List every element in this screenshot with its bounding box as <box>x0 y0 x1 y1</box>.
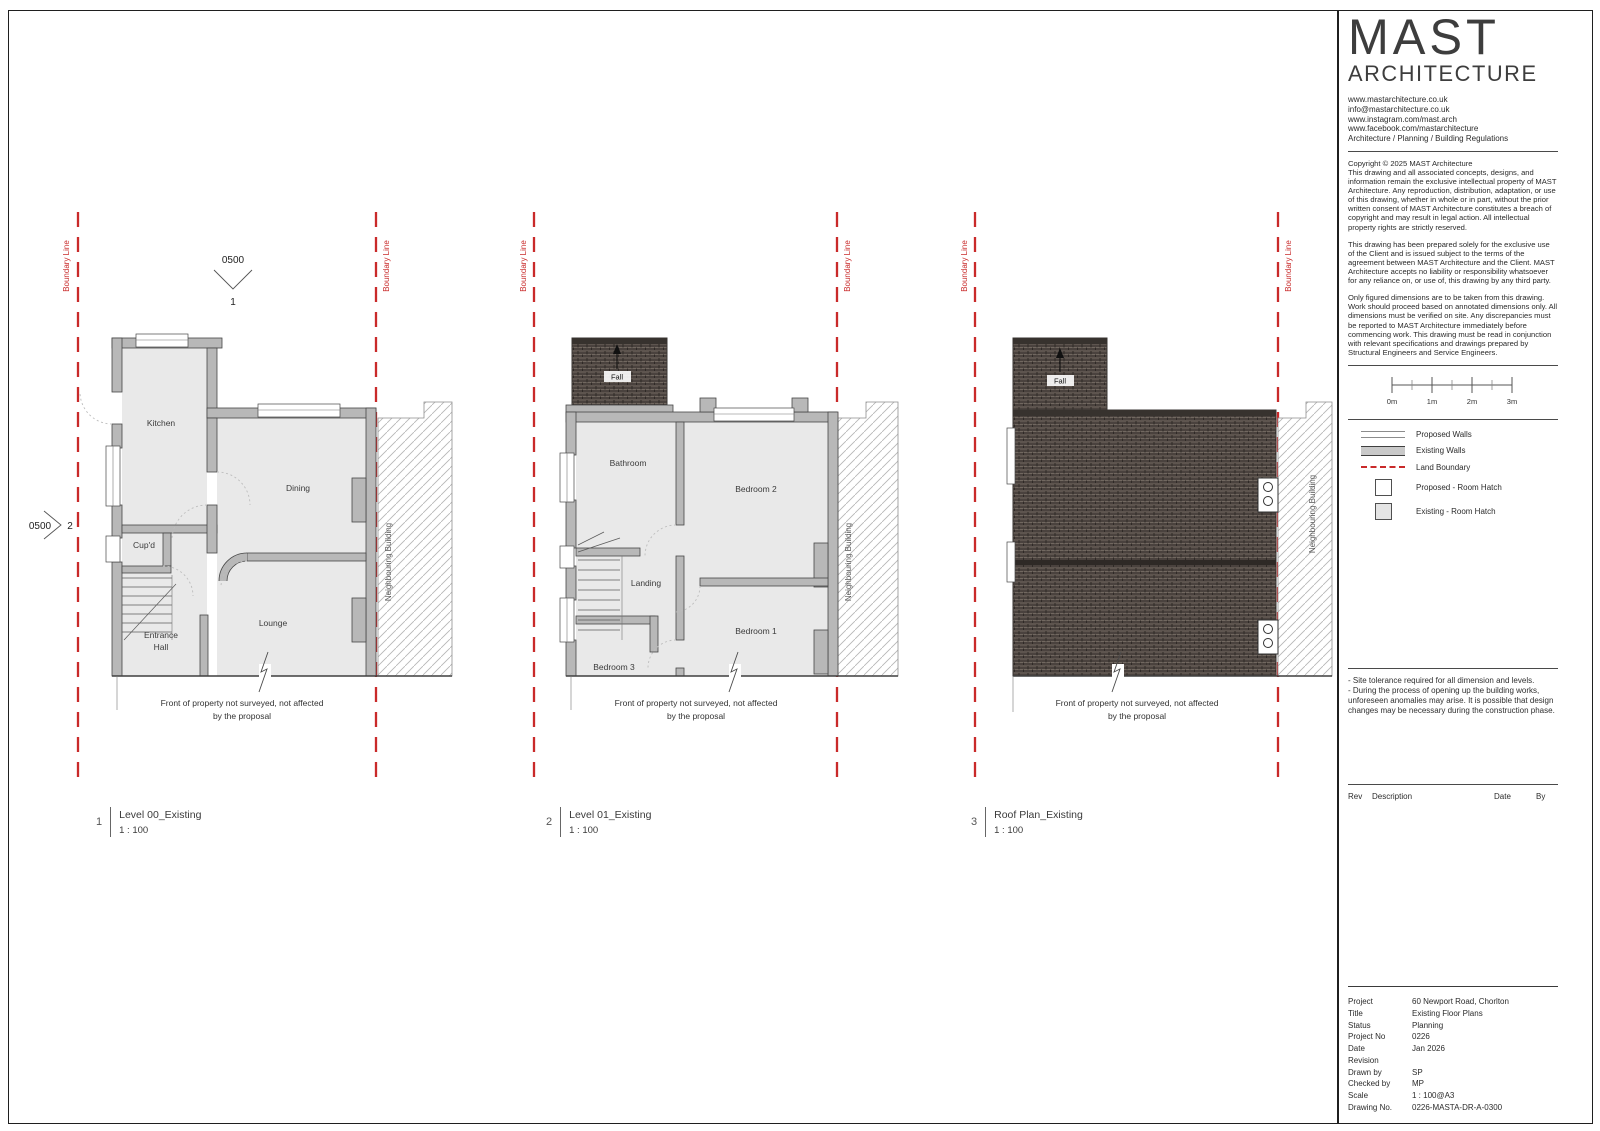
plan-level00: Boundary Line Boundary Line 0500 1 0500 … <box>29 212 452 778</box>
front-note-line2: by the proposal <box>667 711 725 721</box>
front-note-line1: Front of property not surveyed, not affe… <box>615 698 778 708</box>
row-value: Jan 2026 <box>1412 1043 1558 1055</box>
boundary-line-label: Boundary Line <box>519 240 528 292</box>
plan-title-level01: 2 Level 01_Existing 1 : 100 <box>546 807 651 837</box>
row-label: Drawn by <box>1348 1067 1412 1079</box>
boundary-line-label: Boundary Line <box>382 240 391 292</box>
plan-title-text: Level 01_Existing <box>569 809 651 821</box>
section-marker-1-icon: 0500 1 <box>214 255 252 308</box>
legend-row: Land Boundary <box>1360 463 1558 472</box>
section-number: 2 <box>67 521 73 532</box>
front-note-line2: by the proposal <box>1108 711 1166 721</box>
row-label: Revision <box>1348 1055 1412 1067</box>
main-roof-hatch <box>1013 410 1276 676</box>
window <box>1007 428 1015 484</box>
room-label-kitchen: Kitchen <box>147 418 176 428</box>
legend: Proposed Walls Existing Walls Land Bound… <box>1348 430 1558 520</box>
scale-tick-label: 3m <box>1507 397 1517 406</box>
legend-row: Existing Walls <box>1360 446 1558 456</box>
legend-label: Proposed Walls <box>1416 430 1472 439</box>
row-value: Existing Floor Plans <box>1412 1008 1558 1020</box>
revision-table-header: Rev Description Date By <box>1348 784 1558 801</box>
legend-label: Existing Walls <box>1416 446 1466 455</box>
row-label: Title <box>1348 1008 1412 1020</box>
title-divider <box>110 807 111 837</box>
link-facebook: www.facebook.com/mastarchitecture <box>1348 124 1558 134</box>
row-value: Planning <box>1412 1020 1558 1032</box>
logo-text-mast: MAST <box>1348 14 1554 60</box>
scale-bar-graphic: 0m 1m 2m 3m <box>1386 375 1536 407</box>
room-area <box>122 348 207 676</box>
copyright-paragraph-3: Only figured dimensions are to be taken … <box>1348 293 1558 357</box>
row-label: Status <box>1348 1020 1412 1032</box>
link-website: www.mastarchitecture.co.uk <box>1348 95 1558 105</box>
table-row: Status Planning <box>1348 1020 1558 1032</box>
company-links: www.mastarchitecture.co.uk info@mastarch… <box>1348 95 1558 144</box>
title-divider <box>560 807 561 837</box>
roof-edge <box>572 338 667 344</box>
plan-scale-text: 1 : 100 <box>569 825 651 836</box>
table-row: Scale 1 : 100@A3 <box>1348 1090 1558 1102</box>
project-info-table: Project 60 Newport Road, Chorlton Title … <box>1348 986 1558 1114</box>
section-arrow-down-icon <box>214 270 252 289</box>
site-notes: - Site tolerance required for all dimens… <box>1348 668 1558 716</box>
row-label: Project No <box>1348 1031 1412 1043</box>
roof-vent-box <box>1258 478 1278 512</box>
roof-ridge <box>1013 560 1276 565</box>
front-note-line1: Front of property not surveyed, not affe… <box>1056 698 1219 708</box>
row-value: 0226 <box>1412 1031 1558 1043</box>
row-value: 60 Newport Road, Chorlton <box>1412 996 1558 1008</box>
plan-level01: Boundary Line Boundary Line Neighbouring… <box>519 212 898 778</box>
room-label-landing: Landing <box>631 578 662 588</box>
room-label-bedroom1: Bedroom 1 <box>735 626 777 636</box>
plan-title-text: Level 00_Existing <box>119 809 201 821</box>
row-value: 0226-MASTA-DR-A-0300 <box>1412 1102 1558 1114</box>
legend-label: Proposed - Room Hatch <box>1416 483 1502 492</box>
neighbouring-building-label: Neighbouring Building <box>1308 475 1317 553</box>
section-ref: 0500 <box>222 255 245 266</box>
row-label: Scale <box>1348 1090 1412 1102</box>
legend-label: Land Boundary <box>1416 463 1470 472</box>
table-row: Date Jan 2026 <box>1348 1043 1558 1055</box>
link-email: info@mastarchitecture.co.uk <box>1348 105 1558 115</box>
plan-roof: Boundary Line Boundary Line Neighbouring… <box>960 212 1332 778</box>
front-note-line2: by the proposal <box>213 711 271 721</box>
plans-canvas: Boundary Line Boundary Line 0500 1 0500 … <box>0 0 1337 1131</box>
description-col-header: Description <box>1372 792 1494 801</box>
table-row: Project 60 Newport Road, Chorlton <box>1348 996 1558 1008</box>
existing-room-hatch-symbol <box>1375 503 1392 520</box>
title-divider <box>985 807 986 837</box>
plan-title-text: Roof Plan_Existing <box>994 809 1083 821</box>
boundary-line-label: Boundary Line <box>843 240 852 292</box>
section-marker-2-icon: 0500 2 <box>29 511 73 539</box>
copyright-notes: Copyright © 2025 MAST Architecture This … <box>1348 159 1558 357</box>
copyright-paragraph-2: This drawing has been prepared solely fo… <box>1348 240 1558 286</box>
front-note-line1: Front of property not surveyed, not affe… <box>161 698 324 708</box>
row-value: MP <box>1412 1078 1558 1090</box>
row-value <box>1412 1055 1558 1067</box>
roof-eaves <box>1013 410 1276 416</box>
company-logo: MAST ARCHITECTURE <box>1348 14 1558 87</box>
fall-label: Fall <box>1054 377 1066 386</box>
divider-rule <box>1348 419 1558 420</box>
table-row: Title Existing Floor Plans <box>1348 1008 1558 1020</box>
room-label-cupd: Cup'd <box>133 540 155 550</box>
plan-number: 1 <box>96 816 102 828</box>
table-row: Drawn by SP <box>1348 1067 1558 1079</box>
legend-label: Existing - Room Hatch <box>1416 507 1496 516</box>
plan-scale-text: 1 : 100 <box>119 825 201 836</box>
table-row: Checked by MP <box>1348 1078 1558 1090</box>
scale-bar: 0m 1m 2m 3m <box>1348 373 1558 412</box>
site-note-line1: - Site tolerance required for all dimens… <box>1348 676 1558 686</box>
date-col-header: Date <box>1494 792 1536 801</box>
boundary-line-label: Boundary Line <box>62 240 71 292</box>
row-label: Date <box>1348 1043 1412 1055</box>
link-instagram: www.instagram.com/mast.arch <box>1348 115 1558 125</box>
services-line: Architecture / Planning / Building Regul… <box>1348 134 1558 144</box>
room-label-lounge: Lounge <box>259 618 288 628</box>
logo-text-architecture: ARCHITECTURE <box>1348 61 1552 87</box>
scale-tick-label: 1m <box>1427 397 1437 406</box>
row-label: Checked by <box>1348 1078 1412 1090</box>
existing-walls-symbol <box>1361 446 1405 456</box>
divider-rule <box>1348 151 1558 152</box>
row-value: SP <box>1412 1067 1558 1079</box>
table-row: Revision <box>1348 1055 1558 1067</box>
room-label-dining: Dining <box>286 483 310 493</box>
titleblock-divider <box>1337 10 1339 1124</box>
table-row: Project No 0226 <box>1348 1031 1558 1043</box>
divider-rule <box>1348 365 1558 366</box>
rev-col-header: Rev <box>1348 792 1372 801</box>
section-ref: 0500 <box>29 521 52 532</box>
legend-row: Proposed Walls <box>1360 430 1558 439</box>
neighbouring-building-label: Neighbouring Building <box>844 523 853 601</box>
room-label-bedroom3: Bedroom 3 <box>593 662 635 672</box>
site-note-line2: - During the process of opening up the b… <box>1348 686 1558 716</box>
row-label: Project <box>1348 996 1412 1008</box>
room-label-entrance: Entrance <box>144 630 178 640</box>
plan-number: 3 <box>971 816 977 828</box>
neighbouring-building-hatch <box>1278 402 1332 676</box>
table-row: Drawing No. 0226-MASTA-DR-A-0300 <box>1348 1102 1558 1114</box>
roof-vent-box <box>1258 620 1278 654</box>
land-boundary-symbol <box>1361 466 1405 468</box>
plan-scale-text: 1 : 100 <box>994 825 1083 836</box>
by-col-header: By <box>1536 792 1558 801</box>
boundary-line-label: Boundary Line <box>1284 240 1293 292</box>
boundary-line-label: Boundary Line <box>960 240 969 292</box>
drawing-sheet: Boundary Line Boundary Line 0500 1 0500 … <box>0 0 1600 1131</box>
room-label-bathroom: Bathroom <box>610 458 647 468</box>
proposed-walls-symbol <box>1361 431 1405 438</box>
fall-label: Fall <box>611 373 623 382</box>
copyright-paragraph-1: Copyright © 2025 MAST Architecture This … <box>1348 159 1558 232</box>
legend-row: Existing - Room Hatch <box>1360 503 1558 520</box>
roof-edge <box>1013 338 1107 344</box>
section-number: 1 <box>230 297 236 308</box>
plan-title-level00: 1 Level 00_Existing 1 : 100 <box>96 807 201 837</box>
room-label-bedroom2: Bedroom 2 <box>735 484 777 494</box>
plan-title-roof: 3 Roof Plan_Existing 1 : 100 <box>971 807 1083 837</box>
window <box>1007 542 1015 582</box>
scale-tick-label: 0m <box>1387 397 1397 406</box>
room-label-hall: Hall <box>154 642 169 652</box>
row-value: 1 : 100@A3 <box>1412 1090 1558 1102</box>
scale-tick-label: 2m <box>1467 397 1477 406</box>
room-area <box>217 418 366 676</box>
proposed-room-hatch-symbol <box>1375 479 1392 496</box>
plan-number: 2 <box>546 816 552 828</box>
neighbouring-building-label: Neighbouring Building <box>384 523 393 601</box>
title-block: MAST ARCHITECTURE www.mastarchitecture.c… <box>1348 0 1558 1131</box>
row-label: Drawing No. <box>1348 1102 1412 1114</box>
legend-row: Proposed - Room Hatch <box>1360 479 1558 496</box>
